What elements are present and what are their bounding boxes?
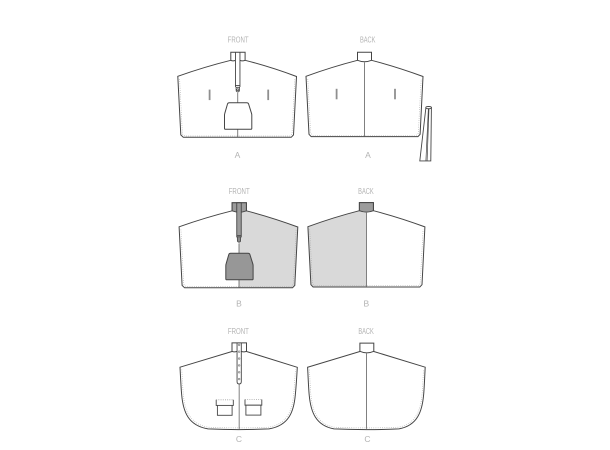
svg-text:BACK: BACK: [358, 327, 374, 336]
svg-text:BACK: BACK: [360, 36, 376, 45]
svg-text:A: A: [235, 150, 241, 160]
svg-text:FRONT: FRONT: [228, 327, 249, 336]
svg-text:FRONT: FRONT: [229, 187, 250, 196]
svg-text:FRONT: FRONT: [228, 36, 249, 45]
svg-text:B: B: [236, 298, 242, 308]
svg-text:C: C: [236, 434, 242, 444]
svg-text:A: A: [365, 150, 371, 160]
svg-text:C: C: [364, 434, 370, 444]
svg-text:BACK: BACK: [358, 187, 374, 196]
svg-text:B: B: [363, 298, 369, 308]
